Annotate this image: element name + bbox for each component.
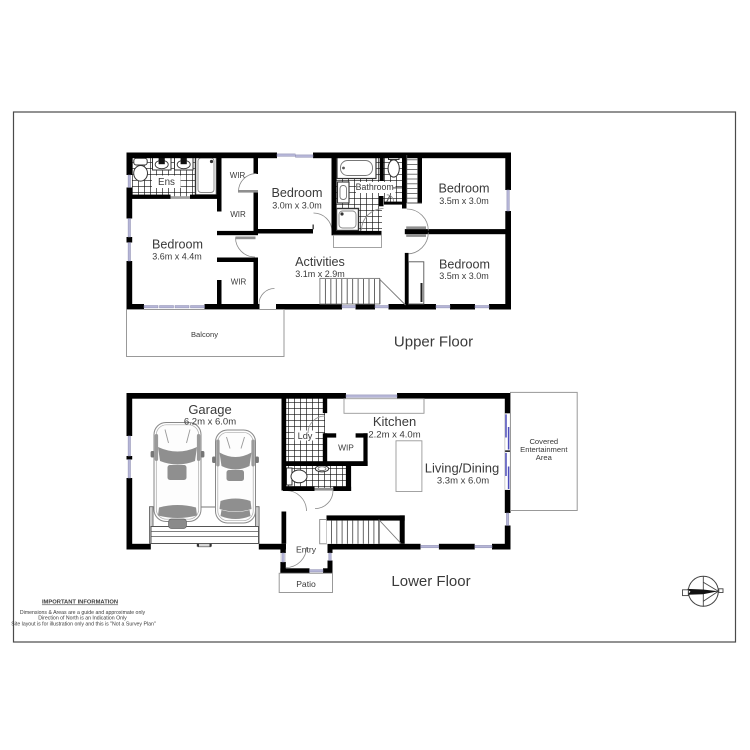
svg-text:WIP: WIP xyxy=(338,443,354,453)
svg-text:Bedroom: Bedroom xyxy=(439,258,490,272)
svg-text:Area: Area xyxy=(536,453,553,462)
svg-text:Bedroom: Bedroom xyxy=(438,182,489,196)
svg-text:3.0m x 3.0m: 3.0m x 3.0m xyxy=(272,201,322,211)
svg-text:Kitchen: Kitchen xyxy=(373,414,416,429)
svg-text:3.1m x 2.9m: 3.1m x 2.9m xyxy=(295,269,345,279)
svg-text:Balcony: Balcony xyxy=(191,330,218,339)
svg-text:Ens: Ens xyxy=(158,177,175,188)
svg-text:Site layout is for illustratio: Site layout is for illustration only and… xyxy=(11,621,156,627)
svg-text:Ldy: Ldy xyxy=(298,431,313,441)
svg-text:2.2m x 4.0m: 2.2m x 4.0m xyxy=(368,430,420,441)
svg-text:WIR: WIR xyxy=(230,171,246,180)
svg-text:3.6m x 4.4m: 3.6m x 4.4m xyxy=(152,252,202,262)
svg-text:3.5m x 3.0m: 3.5m x 3.0m xyxy=(439,271,489,281)
svg-text:Activities: Activities xyxy=(295,255,345,269)
svg-text:3.3m x 6.0m: 3.3m x 6.0m xyxy=(437,476,489,487)
svg-text:Bathroom: Bathroom xyxy=(356,182,394,192)
svg-text:Entry: Entry xyxy=(296,545,317,555)
svg-text:Lower Floor: Lower Floor xyxy=(391,573,470,590)
svg-text:Patio: Patio xyxy=(296,579,316,589)
svg-text:WIR: WIR xyxy=(231,278,247,287)
svg-text:IMPORTANT INFORMATION: IMPORTANT INFORMATION xyxy=(42,600,118,606)
svg-text:3.5m x 3.0m: 3.5m x 3.0m xyxy=(439,196,489,206)
svg-text:Living/Dining: Living/Dining xyxy=(425,461,499,476)
svg-text:Garage: Garage xyxy=(188,402,231,417)
svg-text:Upper Floor: Upper Floor xyxy=(394,334,473,351)
svg-text:Bedroom: Bedroom xyxy=(271,186,322,200)
svg-text:6.2m x 6.0m: 6.2m x 6.0m xyxy=(184,416,236,427)
svg-text:Bedroom: Bedroom xyxy=(152,238,203,252)
svg-text:WIR: WIR xyxy=(230,210,246,219)
